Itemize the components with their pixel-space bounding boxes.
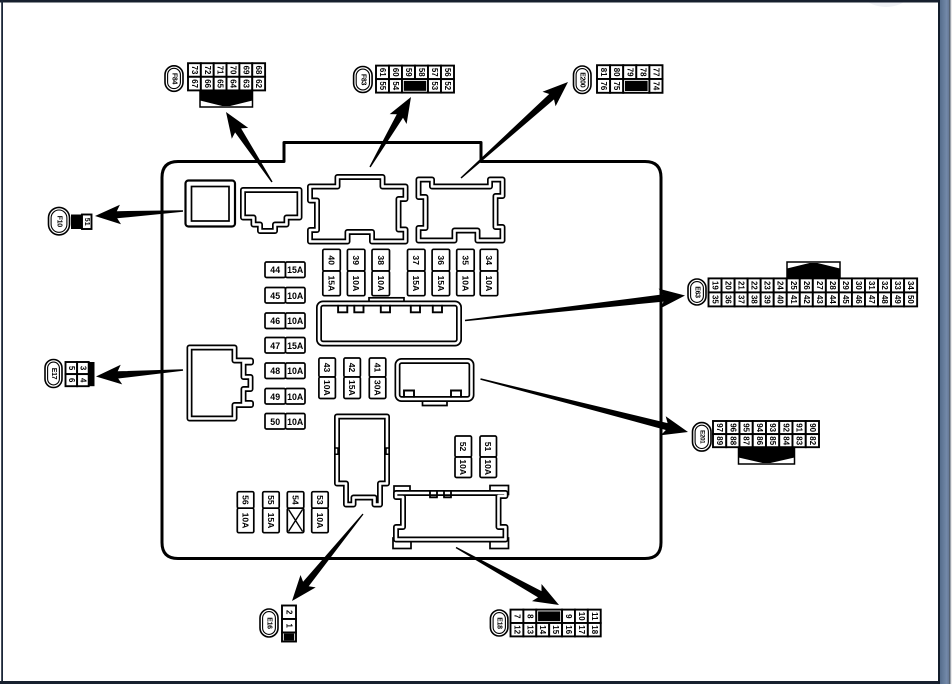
svg-text:66: 66: [203, 79, 212, 88]
svg-text:55: 55: [266, 495, 276, 505]
svg-text:91: 91: [795, 423, 804, 432]
svg-text:11: 11: [590, 612, 599, 621]
svg-text:46: 46: [270, 316, 280, 326]
svg-text:94: 94: [755, 423, 764, 432]
svg-text:35: 35: [460, 255, 470, 265]
svg-text:54: 54: [391, 81, 400, 90]
svg-text:41: 41: [789, 295, 798, 304]
svg-text:74: 74: [652, 82, 661, 91]
svg-text:87: 87: [742, 436, 751, 445]
svg-text:16: 16: [564, 625, 573, 634]
svg-text:44: 44: [828, 295, 837, 304]
svg-text:42: 42: [802, 295, 811, 304]
svg-text:10A: 10A: [483, 459, 493, 475]
svg-text:7: 7: [512, 614, 521, 619]
svg-text:84: 84: [781, 436, 790, 445]
svg-text:3: 3: [78, 366, 87, 371]
svg-text:77: 77: [652, 68, 661, 77]
svg-text:79: 79: [625, 68, 634, 77]
svg-text:37: 37: [411, 255, 421, 265]
svg-text:2: 2: [285, 610, 294, 615]
svg-text:45: 45: [841, 295, 850, 304]
svg-text:30A: 30A: [373, 380, 383, 396]
svg-text:92: 92: [781, 423, 790, 432]
svg-text:93: 93: [768, 423, 777, 432]
svg-text:48: 48: [880, 295, 889, 304]
svg-text:E18: E18: [496, 617, 503, 629]
svg-text:23: 23: [763, 281, 772, 290]
svg-text:15A: 15A: [436, 276, 446, 292]
svg-text:10A: 10A: [351, 276, 361, 292]
svg-text:15A: 15A: [287, 341, 304, 351]
svg-text:59: 59: [404, 68, 413, 77]
svg-text:38: 38: [376, 255, 386, 265]
svg-text:46: 46: [854, 295, 863, 304]
svg-text:29: 29: [841, 281, 850, 290]
svg-text:25: 25: [789, 281, 798, 290]
svg-text:E17: E17: [50, 368, 57, 380]
svg-text:69: 69: [241, 66, 250, 75]
svg-text:85: 85: [768, 436, 777, 445]
svg-text:96: 96: [728, 423, 737, 432]
svg-text:72: 72: [203, 66, 212, 75]
svg-text:56: 56: [443, 68, 452, 77]
svg-text:8: 8: [525, 614, 534, 619]
svg-text:71: 71: [216, 66, 225, 75]
svg-text:73: 73: [190, 66, 199, 75]
svg-text:26: 26: [802, 281, 811, 290]
svg-text:E201: E201: [698, 430, 705, 444]
svg-text:86: 86: [755, 436, 764, 445]
svg-text:57: 57: [430, 68, 439, 77]
svg-text:19: 19: [711, 281, 720, 290]
svg-text:18: 18: [590, 625, 599, 634]
svg-text:49: 49: [270, 392, 280, 402]
svg-text:1: 1: [285, 624, 294, 629]
svg-text:30: 30: [854, 281, 863, 290]
svg-text:12: 12: [512, 625, 521, 634]
svg-text:83: 83: [795, 436, 804, 445]
svg-text:89: 89: [715, 436, 724, 445]
svg-text:E16: E16: [266, 617, 273, 629]
svg-text:70: 70: [229, 66, 238, 75]
svg-text:63: 63: [241, 79, 250, 88]
svg-text:39: 39: [763, 295, 772, 304]
svg-text:E63: E63: [694, 286, 701, 298]
svg-text:51: 51: [483, 442, 493, 452]
svg-text:15A: 15A: [266, 513, 276, 529]
svg-text:75: 75: [612, 82, 621, 91]
svg-text:10A: 10A: [287, 392, 304, 402]
svg-text:E200: E200: [579, 72, 586, 88]
svg-text:64: 64: [229, 79, 238, 88]
svg-text:17: 17: [577, 625, 586, 634]
svg-text:F84: F84: [171, 73, 178, 85]
svg-text:13: 13: [525, 625, 534, 634]
svg-text:40: 40: [776, 295, 785, 304]
svg-text:10: 10: [577, 612, 586, 621]
svg-text:88: 88: [728, 436, 737, 445]
svg-text:10A: 10A: [287, 366, 304, 376]
svg-text:43: 43: [815, 295, 824, 304]
svg-text:10A: 10A: [484, 276, 494, 292]
svg-text:97: 97: [715, 423, 724, 432]
svg-text:28: 28: [828, 281, 837, 290]
svg-text:10A: 10A: [287, 291, 304, 301]
svg-text:10A: 10A: [287, 316, 304, 326]
svg-text:60: 60: [391, 68, 400, 77]
svg-text:10A: 10A: [460, 276, 470, 292]
svg-text:10A: 10A: [322, 380, 332, 396]
svg-text:10A: 10A: [287, 417, 304, 427]
svg-text:82: 82: [808, 436, 817, 445]
svg-text:38: 38: [750, 295, 759, 304]
svg-text:48: 48: [270, 366, 280, 376]
svg-text:31: 31: [867, 281, 876, 290]
svg-text:10A: 10A: [241, 513, 251, 529]
svg-text:33: 33: [893, 281, 902, 290]
svg-text:36: 36: [436, 255, 446, 265]
svg-text:15A: 15A: [327, 276, 337, 292]
svg-text:47: 47: [867, 295, 876, 304]
svg-text:56: 56: [241, 495, 251, 505]
svg-text:53: 53: [430, 81, 439, 90]
svg-text:53: 53: [315, 495, 325, 505]
svg-text:32: 32: [880, 281, 889, 290]
svg-text:F10: F10: [56, 216, 63, 228]
svg-text:68: 68: [254, 66, 263, 75]
svg-text:62: 62: [254, 79, 263, 88]
svg-text:76: 76: [599, 82, 608, 91]
svg-text:61: 61: [378, 68, 387, 77]
svg-text:52: 52: [443, 81, 452, 90]
svg-text:4: 4: [78, 378, 87, 383]
svg-text:14: 14: [538, 625, 547, 634]
svg-text:55: 55: [378, 81, 387, 90]
svg-text:47: 47: [270, 341, 280, 351]
svg-text:34: 34: [906, 281, 915, 290]
svg-text:10A: 10A: [376, 276, 386, 292]
svg-text:15: 15: [551, 625, 560, 634]
svg-text:35: 35: [711, 295, 720, 304]
svg-text:15A: 15A: [347, 380, 357, 396]
svg-text:58: 58: [417, 68, 426, 77]
svg-text:10A: 10A: [458, 459, 468, 475]
svg-text:37: 37: [737, 295, 746, 304]
svg-text:80: 80: [612, 68, 621, 77]
svg-text:50: 50: [270, 417, 280, 427]
svg-text:39: 39: [351, 255, 361, 265]
svg-text:27: 27: [815, 281, 824, 290]
svg-text:42: 42: [347, 363, 357, 373]
svg-text:67: 67: [190, 79, 199, 88]
svg-text:90: 90: [808, 423, 817, 432]
svg-text:6: 6: [67, 378, 76, 383]
svg-text:20: 20: [724, 281, 733, 290]
svg-text:52: 52: [458, 442, 468, 452]
svg-text:24: 24: [776, 281, 785, 290]
svg-text:5: 5: [67, 366, 76, 371]
svg-text:34: 34: [484, 255, 494, 265]
svg-text:40: 40: [327, 255, 337, 265]
svg-text:43: 43: [322, 363, 332, 373]
svg-text:9: 9: [564, 614, 573, 619]
svg-text:F83: F83: [359, 74, 366, 86]
svg-text:81: 81: [599, 68, 608, 77]
svg-text:44: 44: [270, 265, 280, 275]
svg-text:21: 21: [737, 281, 746, 290]
svg-text:49: 49: [893, 295, 902, 304]
svg-text:22: 22: [750, 281, 759, 290]
svg-text:78: 78: [638, 68, 647, 77]
svg-text:15A: 15A: [411, 276, 421, 292]
svg-text:51: 51: [83, 218, 90, 226]
svg-text:41: 41: [373, 363, 383, 373]
svg-text:65: 65: [216, 79, 225, 88]
svg-text:54: 54: [291, 495, 301, 505]
svg-text:50: 50: [906, 295, 915, 304]
svg-text:95: 95: [742, 423, 751, 432]
svg-text:45: 45: [270, 291, 280, 301]
svg-text:10A: 10A: [315, 513, 325, 529]
svg-text:36: 36: [724, 295, 733, 304]
svg-text:15A: 15A: [287, 265, 304, 275]
